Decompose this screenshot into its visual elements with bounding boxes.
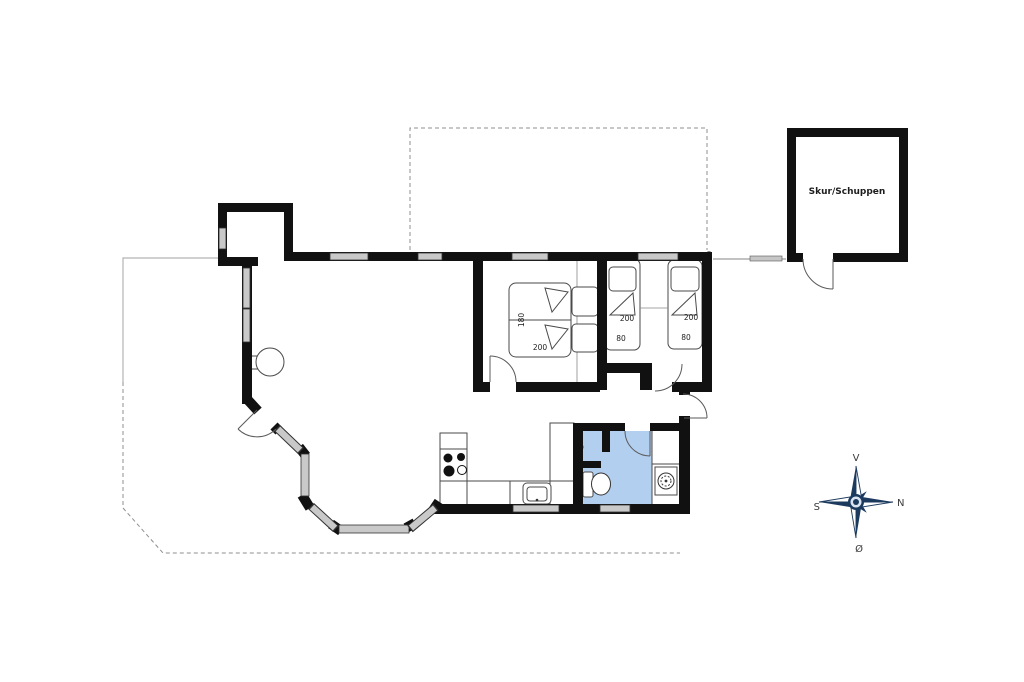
- entry-right-wall: [284, 203, 293, 258]
- nightstand: [572, 287, 598, 316]
- bathroom-stub-wall-h: [583, 461, 601, 468]
- west-window-2: [243, 309, 250, 342]
- compass-rose: V N S Ø: [814, 453, 905, 555]
- toilet: [583, 472, 611, 497]
- single-bed-2-width-label: 80: [681, 333, 691, 342]
- washing-machine: [655, 467, 677, 495]
- kitchen-sink: [523, 483, 551, 504]
- single-bed-1-length-label: 200: [620, 314, 635, 323]
- bedroom1-bottom-wall-left: [473, 382, 490, 392]
- shed-door-opening: [803, 252, 833, 263]
- north-window-1: [330, 253, 368, 260]
- living-bedroom1-wall: [473, 258, 483, 392]
- compass-label-top: V: [853, 453, 860, 464]
- shed-label: Skur/Schuppen: [809, 187, 886, 197]
- single-bed-1: 200 80: [605, 259, 640, 350]
- single-bed-1-width-label: 80: [616, 334, 626, 343]
- entry-top-wall: [218, 203, 293, 212]
- bedroom2-door-jamb: [640, 363, 652, 390]
- pillow: [609, 267, 636, 291]
- north-window-3: [512, 253, 548, 260]
- bathroom-top-wall-left: [573, 423, 625, 431]
- north-window-4: [638, 253, 678, 260]
- floor-plan-canvas: 180 200 200 80 200 80: [0, 0, 1024, 682]
- double-bed-width-label: 180: [517, 313, 526, 328]
- bathroom-left-wall: [573, 423, 583, 514]
- entry-window: [219, 228, 226, 249]
- west-window-1: [243, 268, 250, 308]
- sw-diagonal-wall: [247, 399, 258, 411]
- kitchen: [440, 423, 574, 507]
- double-bed-length-label: 200: [533, 343, 548, 352]
- shed-door-arc: [803, 259, 833, 289]
- bay-window-vertical: [301, 454, 309, 496]
- south-window-bathroom: [600, 505, 630, 512]
- entrance-door: [683, 394, 707, 418]
- bathroom-stub-wall-v: [602, 431, 610, 452]
- wood-stove: [251, 348, 284, 376]
- double-bed: 180 200: [509, 283, 598, 357]
- south-wall: [433, 504, 690, 514]
- south-window-kitchen: [513, 505, 559, 512]
- floor-plan-drawing: 180 200 200 80 200 80: [0, 0, 1024, 682]
- bedroom3-bottom-wall: [672, 382, 712, 392]
- single-bed-2-length-label: 200: [684, 313, 699, 322]
- east-wall-upper: [702, 252, 712, 392]
- bedroom2-bottom-wall: [597, 363, 643, 373]
- single-bed-2: 200 80: [668, 260, 702, 349]
- gate: [750, 256, 782, 261]
- roofed-terrace-dashed: [410, 128, 707, 250]
- compass-label-left: S: [814, 502, 820, 513]
- kitchen-counter-right: [550, 423, 574, 507]
- bay-window-horizontal: [339, 525, 409, 533]
- compass-label-right: N: [897, 498, 904, 509]
- bedroom1-door: [490, 356, 516, 382]
- compass-label-bottom: Ø: [855, 543, 863, 555]
- bathroom-top-wall-right: [650, 423, 690, 431]
- terrace-door: [238, 410, 276, 437]
- nightstand: [572, 324, 598, 352]
- pillow: [671, 267, 699, 291]
- bedroom1-bottom-wall-right: [516, 382, 600, 392]
- north-window-2: [418, 253, 442, 260]
- shed: Skur/Schuppen: [792, 133, 904, 290]
